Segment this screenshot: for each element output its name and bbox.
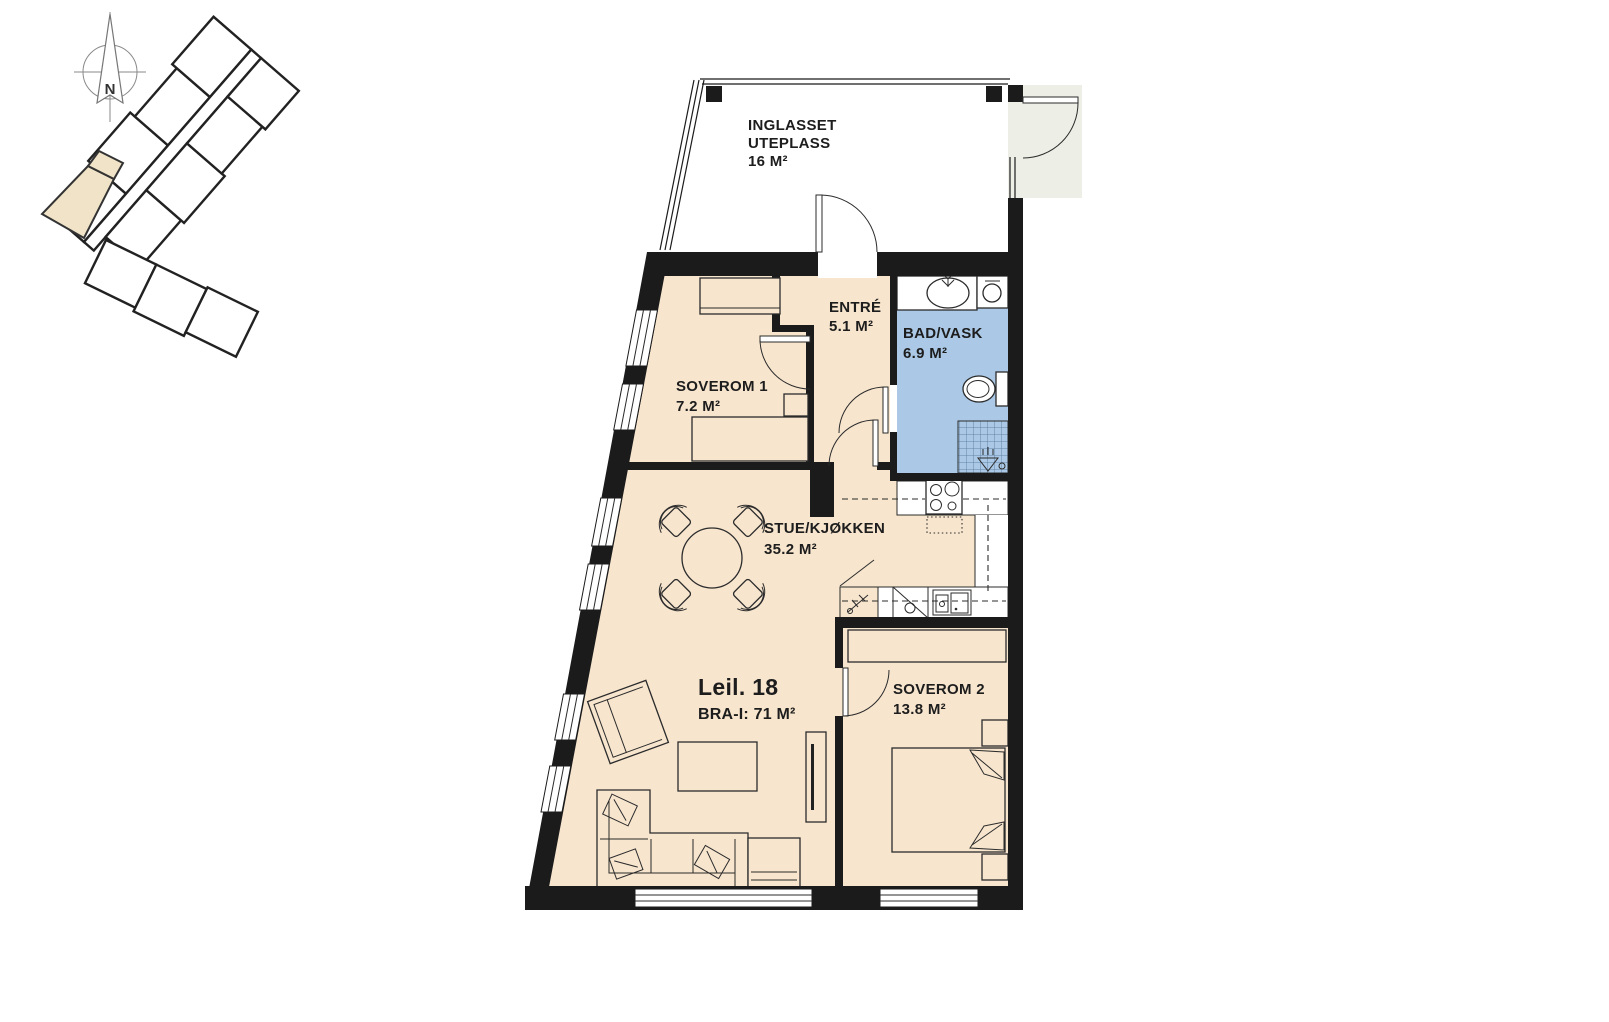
room-label-uteplass: INGLASSET [748,117,837,134]
bed-soverom2 [892,748,1005,852]
tv-icon [811,744,814,810]
room-area-soverom1: 7.2 M² [676,398,720,415]
room-area-soverom2: 13.8 M² [893,701,946,718]
window [635,889,812,907]
nightstand-soverom1 [784,394,808,416]
terrace-door-opening [818,250,877,278]
room-label-soverom2: SOVEROM 2 [893,681,985,698]
nightstand-soverom2 [982,854,1008,880]
tv-bench [806,732,826,822]
wardrobe-soverom2 [848,630,1006,662]
shower-icon [958,421,1008,473]
terrace [660,79,1015,252]
dishwasher-icon [893,587,928,618]
window [880,889,978,907]
room-area-uteplass: 16 M² [748,153,788,170]
kitchen-sink-icon [933,590,971,615]
right-wall [1008,212,1023,910]
stove-icon [926,480,962,514]
apartment-name: Leil. 18 [698,674,778,700]
room-area-entre: 5.1 M² [829,318,873,335]
floor-plan-svg: N [0,0,1609,1022]
wardrobe-soverom1 [700,278,780,314]
room-area-stue: 35.2 M² [764,541,817,558]
bathroom [890,275,1008,473]
top-wall-right [877,252,1008,276]
coffee-table [678,742,757,791]
top-wall-left [664,252,818,276]
dining-table [682,528,742,588]
site-plan [42,17,299,361]
room-label-uteplass: UTEPLASS [748,135,830,152]
washing-machine-icon [977,276,1008,308]
nightstand-soverom2 [982,720,1008,746]
site-lower-wing [83,238,258,360]
apartment-area: BRA-I: 71 M² [698,706,796,723]
floor-plan-page: N [0,0,1609,1022]
room-label-entre: ENTRÉ [829,299,881,316]
bed-soverom1 [692,417,808,461]
room-area-bad: 6.9 M² [903,345,947,362]
side-chair [748,838,800,889]
compass: N [74,12,146,122]
room-label-bad: BAD/VASK [903,325,983,342]
compass-north-label: N [105,81,116,98]
room-label-stue: STUE/KJØKKEN [764,520,885,537]
kitchen-counter-right [975,515,1008,587]
terrace-floor [675,80,1008,252]
bathroom-door-opening [890,385,897,432]
room-label-soverom1: SOVEROM 1 [676,378,768,395]
site-main-wing [46,17,299,284]
